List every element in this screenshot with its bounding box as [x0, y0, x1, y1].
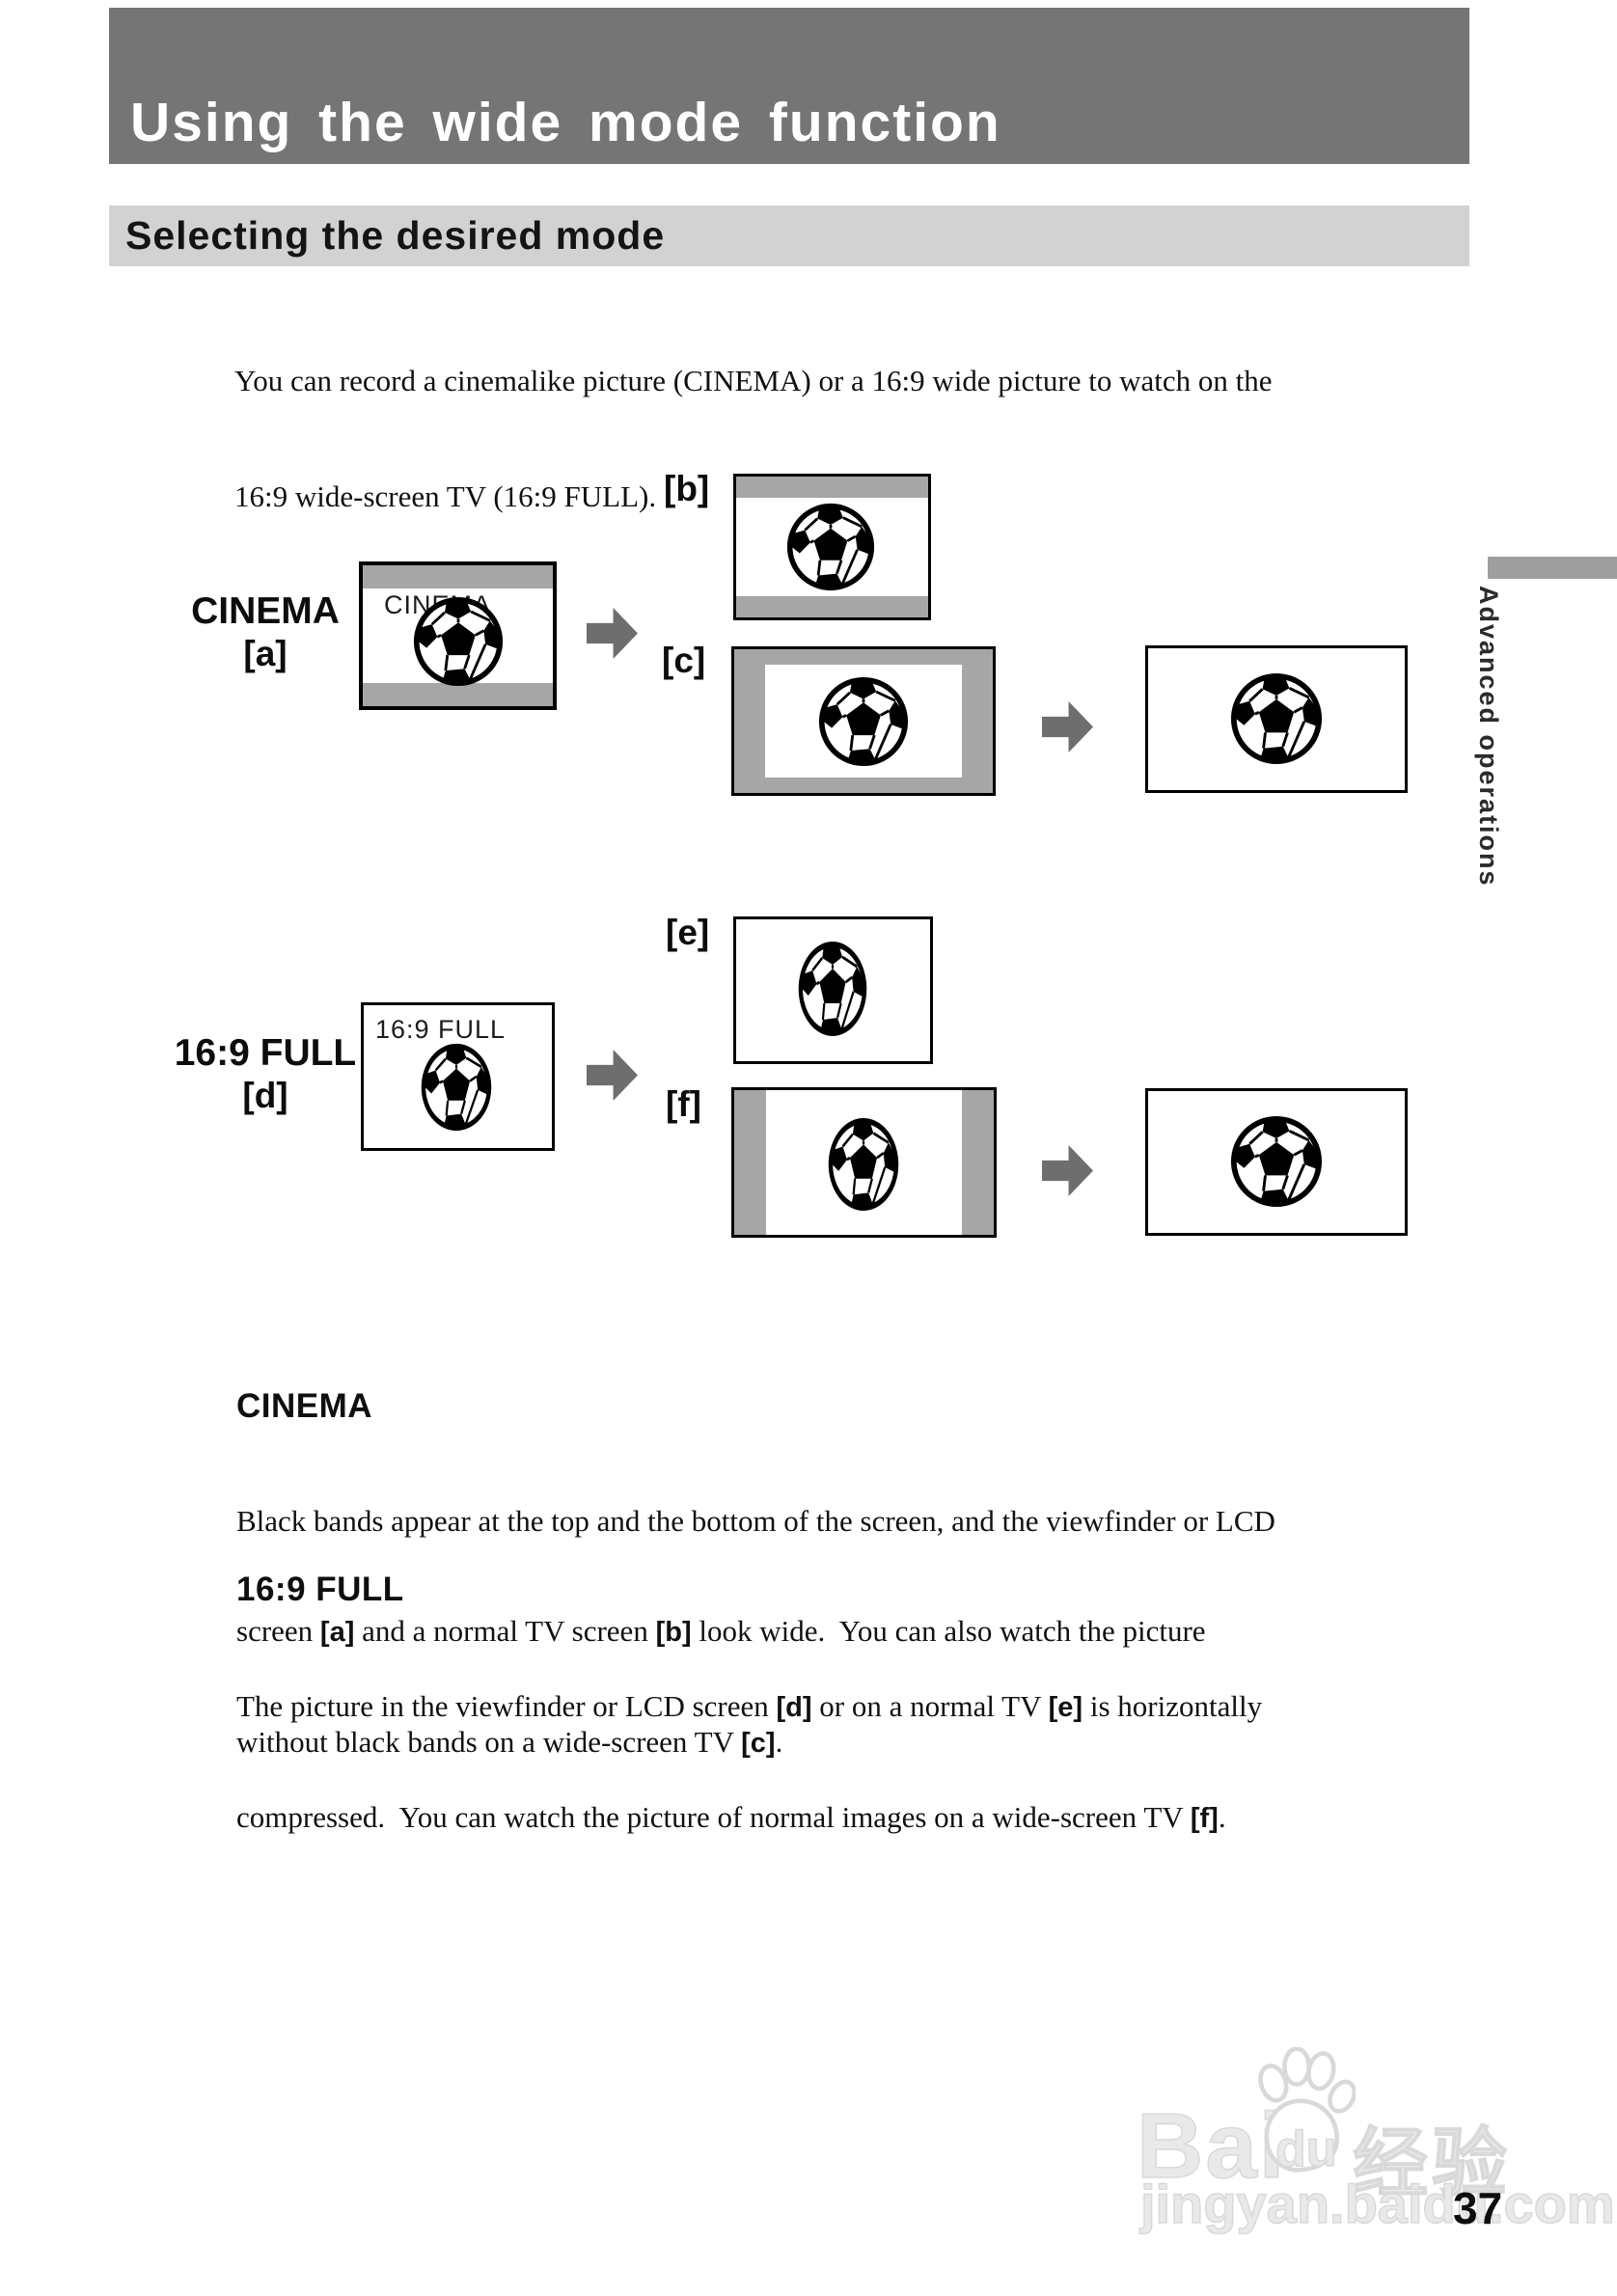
inline-text: or on a normal TV: [812, 1689, 1049, 1723]
section-heading: Selecting the desired mode: [125, 216, 665, 256]
inline-ref: [e]: [1049, 1692, 1083, 1723]
full-mode-ref: [d]: [169, 1075, 362, 1117]
compressed-soccer-ball-icon: [828, 1117, 899, 1212]
inline-text: Black bands appear at the top and the bo…: [236, 1504, 1275, 1538]
soccer-ball-icon: [1230, 1115, 1323, 1208]
full-mode-label: 16:9 FULL [d]: [169, 1032, 362, 1117]
right-arrow-icon: [1042, 1145, 1093, 1196]
cinema-mode-name: CINEMA: [178, 590, 352, 633]
normal-tv-full-box: [733, 916, 933, 1064]
manual-page: Using the wide mode function Selecting t…: [0, 0, 1617, 2296]
right-arrow-icon: [587, 1050, 638, 1101]
intro-line: You can record a cinemalike picture (CIN…: [234, 362, 1272, 400]
viewfinder-cinema-box: CINEMA: [359, 561, 557, 710]
black-band-top: [736, 477, 928, 498]
right-arrow-icon: [1042, 701, 1093, 752]
cinema-mode-ref: [a]: [178, 633, 352, 675]
soccer-ball-icon: [786, 503, 875, 591]
page-number: 37: [1453, 2182, 1502, 2234]
full-mode-name: 16:9 FULL: [169, 1032, 362, 1075]
ref-label-f: [f]: [666, 1084, 701, 1125]
inline-text: .: [1219, 1800, 1226, 1834]
page-title-bar: Using the wide mode function: [109, 8, 1469, 164]
soccer-ball-icon: [818, 676, 909, 767]
gray-band-right: [962, 1090, 994, 1235]
chapter-tab-marker: [1488, 557, 1617, 579]
ref-label-b: [b]: [664, 469, 709, 509]
soccer-ball-icon: [1230, 672, 1323, 765]
inline-ref: [d]: [777, 1692, 812, 1723]
normal-tv-cinema-box: [733, 474, 931, 620]
full-section-heading: 16:9 FULL: [236, 1571, 404, 1609]
picture-window: [765, 665, 962, 778]
cinema-mode-label: CINEMA [a]: [178, 590, 352, 675]
inline-text: compressed. You can watch the picture of…: [236, 1800, 1191, 1834]
ref-label-c: [c]: [662, 641, 705, 681]
inline-text: The picture in the viewfinder or LCD scr…: [236, 1689, 777, 1723]
widescreen-tv-result-box: [1145, 1088, 1408, 1236]
right-arrow-icon: [587, 608, 638, 659]
compressed-soccer-ball-icon: [798, 941, 867, 1037]
full-section-paragraph: The picture in the viewfinder or LCD scr…: [236, 1615, 1262, 1910]
inline-ref: [f]: [1191, 1803, 1219, 1834]
watermark-brand-du: du: [1275, 2120, 1337, 2178]
paragraph-line: Black bands appear at the top and the bo…: [236, 1503, 1275, 1540]
inline-text: is horizontally: [1083, 1689, 1262, 1723]
black-band-bottom: [736, 596, 928, 617]
ref-label-e: [e]: [666, 913, 709, 953]
paragraph-line: compressed. You can watch the picture of…: [236, 1799, 1262, 1837]
widescreen-tv-cinema-box: [731, 646, 996, 796]
soccer-ball-icon: [413, 596, 504, 687]
gray-band-left: [734, 1090, 766, 1235]
widescreen-tv-result-box: [1145, 645, 1408, 793]
viewfinder-full-box: 16:9 FULL: [361, 1002, 555, 1151]
section-heading-bar: Selecting the desired mode: [109, 205, 1469, 266]
compressed-soccer-ball-icon: [421, 1043, 492, 1132]
widescreen-tv-full-box: [731, 1087, 997, 1238]
page-title: Using the wide mode function: [130, 96, 1001, 150]
cinema-section-heading: CINEMA: [236, 1387, 372, 1426]
watermark-url: jingyan.baidu.com: [1140, 2173, 1615, 2235]
screen-mode-indicator: 16:9 FULL: [375, 1015, 506, 1045]
chapter-tab-label: Advanced operations: [1473, 586, 1503, 894]
black-band-top: [363, 565, 553, 588]
paragraph-line: The picture in the viewfinder or LCD scr…: [236, 1688, 1262, 1726]
